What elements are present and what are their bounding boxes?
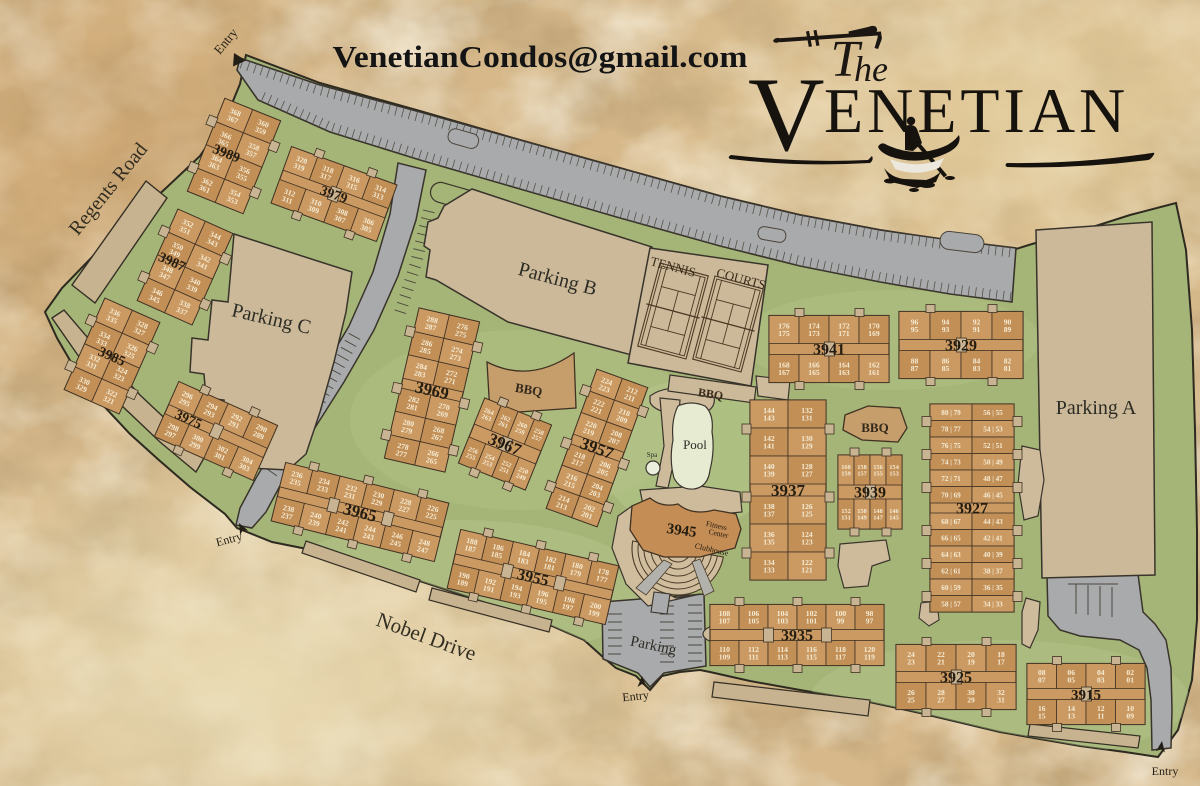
svg-text:07: 07 — [1038, 676, 1046, 685]
svg-text:52 | 51: 52 | 51 — [983, 442, 1003, 450]
svg-text:171: 171 — [838, 329, 850, 338]
svg-text:3939: 3939 — [854, 485, 886, 502]
svg-text:165: 165 — [808, 368, 820, 377]
svg-text:97: 97 — [866, 617, 874, 626]
svg-text:13: 13 — [1067, 712, 1075, 721]
svg-text:3915: 3915 — [1071, 687, 1101, 703]
svg-text:91: 91 — [973, 325, 981, 334]
svg-text:81: 81 — [1004, 364, 1012, 373]
svg-text:54 | 53: 54 | 53 — [983, 426, 1003, 434]
svg-text:123: 123 — [801, 538, 813, 547]
svg-text:23: 23 — [907, 658, 915, 667]
svg-text:19: 19 — [967, 658, 975, 667]
svg-text:109: 109 — [719, 653, 731, 662]
svg-text:Entry: Entry — [1152, 764, 1179, 778]
svg-text:Spa: Spa — [647, 451, 658, 459]
svg-text:38 | 37: 38 | 37 — [983, 568, 1003, 576]
svg-text:Pool: Pool — [683, 437, 707, 452]
svg-text:58 | 57: 58 | 57 — [941, 601, 961, 609]
svg-text:29: 29 — [967, 696, 975, 705]
svg-text:127: 127 — [801, 470, 813, 479]
svg-text:27: 27 — [937, 696, 945, 705]
svg-text:157: 157 — [857, 470, 867, 477]
svg-text:83: 83 — [973, 364, 981, 373]
svg-text:143: 143 — [763, 414, 775, 423]
svg-text:70 | 69: 70 | 69 — [941, 492, 961, 500]
svg-text:85: 85 — [942, 364, 950, 373]
svg-text:161: 161 — [868, 368, 880, 377]
svg-text:105: 105 — [748, 617, 760, 626]
svg-text:119: 119 — [864, 653, 875, 662]
svg-text:ENETIAN: ENETIAN — [824, 75, 1129, 146]
svg-text:36 | 35: 36 | 35 — [983, 584, 1003, 592]
svg-text:145: 145 — [889, 514, 899, 521]
svg-text:95: 95 — [911, 325, 919, 334]
svg-text:111: 111 — [748, 653, 759, 662]
svg-text:62 | 61: 62 | 61 — [941, 568, 961, 576]
svg-text:Parking A: Parking A — [1056, 397, 1137, 419]
svg-text:89: 89 — [1004, 325, 1012, 334]
svg-text:137: 137 — [763, 510, 775, 519]
svg-text:87: 87 — [911, 364, 919, 373]
svg-text:163: 163 — [838, 368, 850, 377]
svg-text:03: 03 — [1097, 676, 1105, 685]
svg-text:48 | 47: 48 | 47 — [983, 475, 1003, 483]
svg-text:3941: 3941 — [813, 342, 845, 359]
svg-text:129: 129 — [801, 442, 813, 451]
svg-text:44 | 43: 44 | 43 — [983, 518, 1003, 526]
svg-text:21: 21 — [937, 658, 945, 667]
svg-text:56 | 55: 56 | 55 — [983, 409, 1003, 417]
svg-text:167: 167 — [778, 368, 790, 377]
svg-text:46 | 45: 46 | 45 — [983, 492, 1003, 500]
svg-text:3925: 3925 — [940, 670, 972, 687]
svg-text:139: 139 — [763, 470, 775, 479]
svg-text:173: 173 — [808, 329, 820, 338]
svg-text:BBQ: BBQ — [861, 420, 888, 435]
svg-text:01: 01 — [1126, 676, 1134, 685]
svg-text:74 | 73: 74 | 73 — [941, 459, 961, 467]
svg-text:64 | 63: 64 | 63 — [941, 551, 961, 559]
svg-text:11: 11 — [1097, 712, 1104, 721]
svg-text:Entry: Entry — [622, 688, 650, 705]
svg-text:3935: 3935 — [781, 628, 813, 645]
svg-text:42 | 41: 42 | 41 — [983, 535, 1003, 543]
svg-text:153: 153 — [889, 470, 899, 477]
svg-text:31: 31 — [997, 696, 1005, 705]
svg-text:121: 121 — [801, 566, 813, 575]
svg-text:72 | 71: 72 | 71 — [941, 475, 961, 483]
svg-text:151: 151 — [841, 514, 851, 521]
svg-text:169: 169 — [868, 329, 880, 338]
svg-text:93: 93 — [942, 325, 950, 334]
svg-text:76 | 75: 76 | 75 — [941, 442, 961, 450]
svg-text:125: 125 — [801, 510, 813, 519]
svg-text:147: 147 — [873, 514, 883, 521]
svg-text:25: 25 — [907, 696, 915, 705]
svg-text:117: 117 — [835, 653, 846, 662]
svg-text:149: 149 — [857, 514, 867, 521]
svg-text:60 | 59: 60 | 59 — [941, 584, 961, 592]
svg-text:3937: 3937 — [771, 481, 806, 500]
svg-text:80 | 79: 80 | 79 — [941, 409, 961, 417]
svg-text:09: 09 — [1126, 712, 1134, 721]
svg-text:99: 99 — [837, 617, 845, 626]
svg-text:15: 15 — [1038, 712, 1046, 721]
svg-text:40 | 39: 40 | 39 — [983, 551, 1003, 559]
svg-text:115: 115 — [806, 653, 817, 662]
svg-text:78 | 77: 78 | 77 — [941, 426, 961, 434]
svg-text:3929: 3929 — [945, 338, 977, 355]
svg-text:135: 135 — [763, 538, 775, 547]
svg-text:107: 107 — [719, 617, 731, 626]
svg-text:113: 113 — [777, 653, 788, 662]
svg-text:155: 155 — [873, 470, 883, 477]
svg-text:175: 175 — [778, 329, 790, 338]
svg-text:159: 159 — [841, 470, 851, 477]
svg-text:133: 133 — [763, 566, 775, 575]
svg-text:131: 131 — [801, 414, 813, 423]
svg-text:05: 05 — [1067, 676, 1075, 685]
svg-text:141: 141 — [763, 442, 775, 451]
svg-text:3927: 3927 — [956, 501, 988, 518]
svg-text:V: V — [748, 56, 825, 173]
svg-text:66 | 65: 66 | 65 — [941, 535, 961, 543]
svg-text:50 | 49: 50 | 49 — [983, 459, 1003, 467]
svg-text:68 | 67: 68 | 67 — [941, 518, 961, 526]
svg-text:VenetianCondos@gmail.com: VenetianCondos@gmail.com — [333, 39, 748, 74]
svg-text:34 | 33: 34 | 33 — [983, 601, 1003, 609]
svg-text:17: 17 — [997, 658, 1005, 667]
svg-text:103: 103 — [777, 617, 789, 626]
svg-text:101: 101 — [806, 617, 818, 626]
